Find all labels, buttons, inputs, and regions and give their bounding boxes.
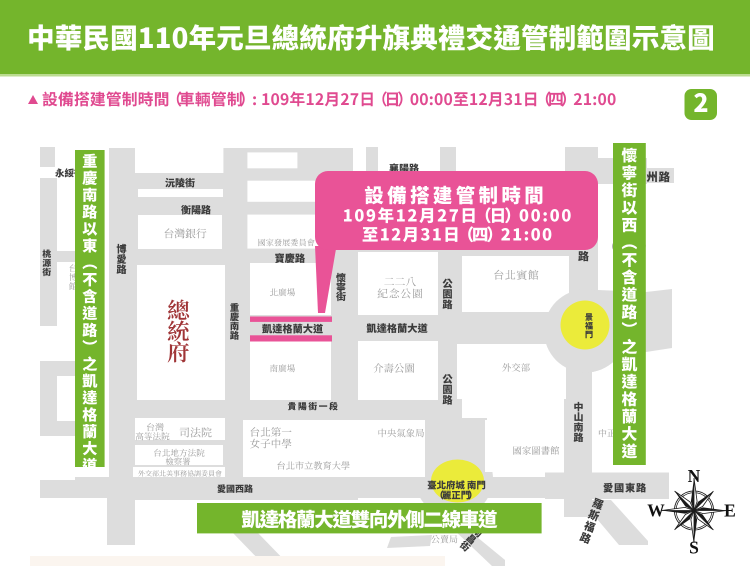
svg-text:S: S xyxy=(689,538,699,558)
svg-text:E: E xyxy=(724,501,736,521)
svg-text:N: N xyxy=(688,466,701,486)
svg-text:W: W xyxy=(647,501,665,521)
